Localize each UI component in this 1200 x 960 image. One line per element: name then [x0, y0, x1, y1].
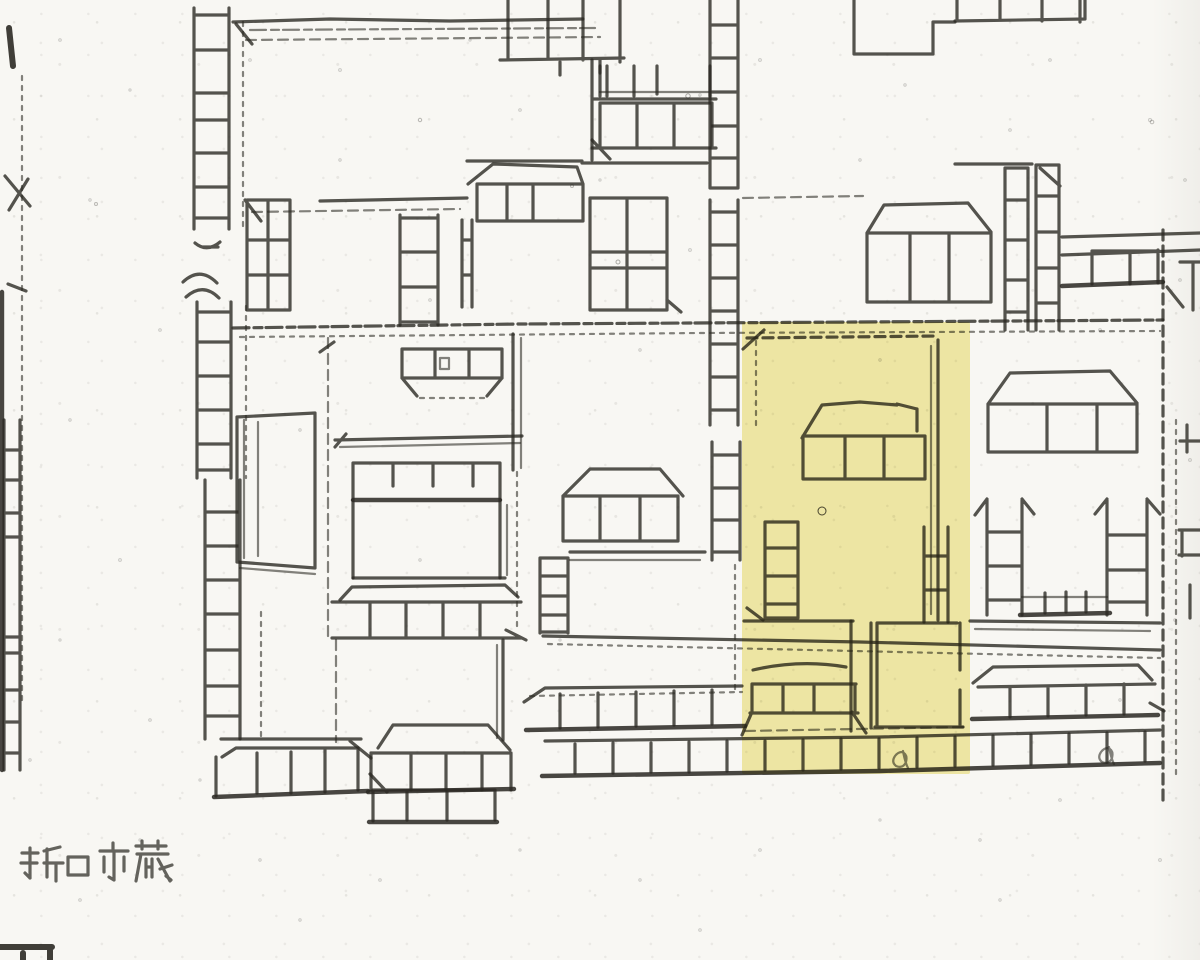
paper-speckles: [29, 39, 1192, 932]
map-canvas: [0, 0, 1200, 960]
neighbor-block-left-edge: [0, 28, 52, 960]
west-block: [237, 334, 705, 742]
map-scan: 折口市蔵: [0, 0, 1200, 960]
highlight-overlay: [742, 322, 970, 774]
west-brick-wall: [183, 8, 371, 758]
owner-label-text: 折口市蔵: [16, 832, 206, 892]
central-street: [233, 320, 1163, 337]
